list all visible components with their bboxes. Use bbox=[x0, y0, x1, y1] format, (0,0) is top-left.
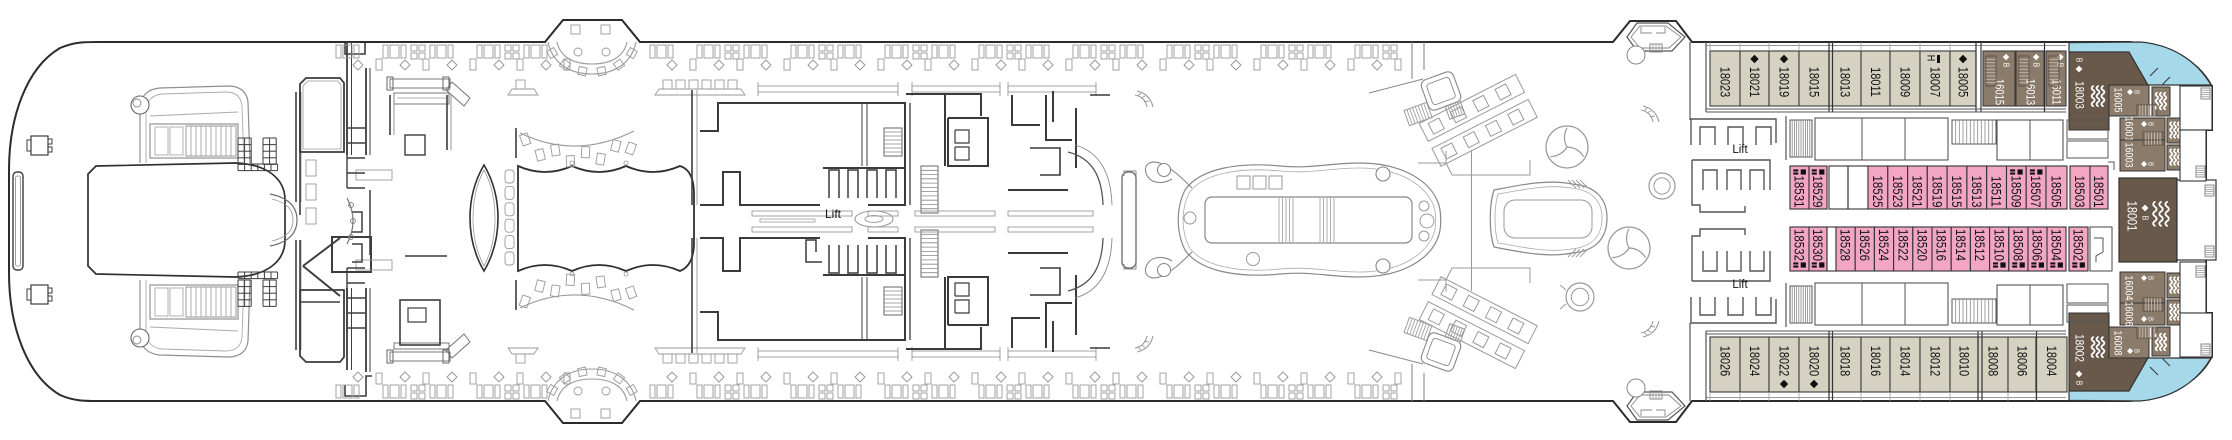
svg-text:16005: 16005 bbox=[2111, 88, 2123, 113]
svg-text:18515: 18515 bbox=[1949, 176, 1965, 208]
svg-text:18023: 18023 bbox=[1717, 67, 1732, 98]
svg-text:18006: 18006 bbox=[2014, 346, 2029, 377]
svg-text:B: B bbox=[2074, 58, 2084, 62]
svg-text:H: H bbox=[1924, 55, 1936, 61]
svg-text:B: B bbox=[2001, 63, 2011, 67]
svg-text:18514: 18514 bbox=[1953, 229, 1969, 261]
svg-text:16003: 16003 bbox=[2122, 143, 2134, 168]
svg-text:18524: 18524 bbox=[1876, 229, 1892, 261]
svg-text:B: B bbox=[2132, 90, 2140, 94]
svg-text:18011: 18011 bbox=[1868, 67, 1883, 97]
svg-text:16008: 16008 bbox=[2111, 331, 2123, 356]
svg-text:B: B bbox=[2074, 381, 2084, 385]
svg-text:16004: 16004 bbox=[2122, 276, 2134, 301]
svg-text:18508: 18508 bbox=[2010, 229, 2026, 261]
svg-text:18008: 18008 bbox=[1985, 346, 2000, 377]
svg-text:18014: 18014 bbox=[1897, 346, 1912, 377]
svg-text:18013: 18013 bbox=[1837, 67, 1852, 98]
svg-text:B: B bbox=[2146, 162, 2154, 166]
svg-text:18026: 18026 bbox=[1717, 346, 1732, 377]
svg-text:B: B bbox=[2031, 63, 2041, 67]
svg-text:18529: 18529 bbox=[1810, 176, 1826, 208]
svg-text:18520: 18520 bbox=[1914, 229, 1930, 261]
svg-text:B: B bbox=[2146, 122, 2154, 126]
svg-text:B: B bbox=[2146, 276, 2154, 280]
svg-text:18516: 18516 bbox=[1933, 229, 1949, 261]
svg-text:18528: 18528 bbox=[1837, 229, 1853, 261]
svg-text:18522: 18522 bbox=[1895, 229, 1911, 261]
svg-text:18016: 18016 bbox=[1868, 346, 1883, 377]
svg-text:B: B bbox=[2055, 63, 2065, 67]
svg-text:B: B bbox=[2140, 216, 2150, 221]
svg-text:18504: 18504 bbox=[2048, 229, 2064, 261]
svg-text:18012: 18012 bbox=[1927, 346, 1942, 377]
svg-text:18519: 18519 bbox=[1929, 176, 1945, 208]
svg-text:18003: 18003 bbox=[2072, 81, 2085, 109]
svg-text:18015: 18015 bbox=[1806, 67, 1821, 98]
svg-text:18502: 18502 bbox=[2070, 229, 2086, 261]
svg-text:18501: 18501 bbox=[2091, 176, 2107, 208]
svg-text:18523: 18523 bbox=[1889, 176, 1905, 208]
svg-text:18525: 18525 bbox=[1870, 176, 1886, 208]
svg-text:18007: 18007 bbox=[1927, 67, 1942, 98]
svg-text:18018: 18018 bbox=[1837, 346, 1852, 377]
svg-text:18001: 18001 bbox=[2124, 201, 2139, 232]
svg-text:18009: 18009 bbox=[1897, 67, 1912, 98]
svg-text:18513: 18513 bbox=[1969, 176, 1985, 208]
svg-text:Lift: Lift bbox=[1732, 279, 1748, 291]
svg-text:18004: 18004 bbox=[2044, 346, 2059, 377]
svg-text:Lift: Lift bbox=[825, 207, 842, 221]
svg-text:B: B bbox=[2146, 317, 2154, 321]
svg-text:18532: 18532 bbox=[1791, 229, 1807, 261]
svg-text:18510: 18510 bbox=[1991, 229, 2007, 261]
svg-text:18505: 18505 bbox=[2048, 176, 2064, 208]
svg-text:18022: 18022 bbox=[1776, 346, 1791, 377]
svg-text:18531: 18531 bbox=[1791, 176, 1807, 208]
svg-text:18506: 18506 bbox=[2029, 229, 2045, 261]
svg-text:18530: 18530 bbox=[1810, 229, 1826, 261]
svg-text:18503: 18503 bbox=[2072, 176, 2088, 208]
svg-text:18507: 18507 bbox=[2028, 176, 2044, 208]
svg-text:18512: 18512 bbox=[1972, 229, 1988, 261]
svg-text:B: B bbox=[2132, 349, 2140, 353]
svg-text:18509: 18509 bbox=[2008, 176, 2024, 208]
svg-text:16006: 16006 bbox=[2122, 302, 2134, 327]
svg-text:18005: 18005 bbox=[1955, 67, 1970, 98]
svg-text:18521: 18521 bbox=[1909, 176, 1925, 208]
svg-text:18019: 18019 bbox=[1776, 67, 1791, 98]
svg-text:18024: 18024 bbox=[1747, 346, 1762, 377]
svg-text:18002: 18002 bbox=[2072, 334, 2085, 362]
svg-text:16001: 16001 bbox=[2122, 117, 2134, 142]
svg-text:Lift: Lift bbox=[1732, 144, 1748, 156]
svg-text:18010: 18010 bbox=[1956, 346, 1971, 377]
svg-text:18511: 18511 bbox=[1988, 176, 2004, 207]
svg-text:18526: 18526 bbox=[1857, 229, 1873, 261]
svg-text:18021: 18021 bbox=[1747, 67, 1762, 98]
svg-text:18020: 18020 bbox=[1806, 346, 1821, 377]
